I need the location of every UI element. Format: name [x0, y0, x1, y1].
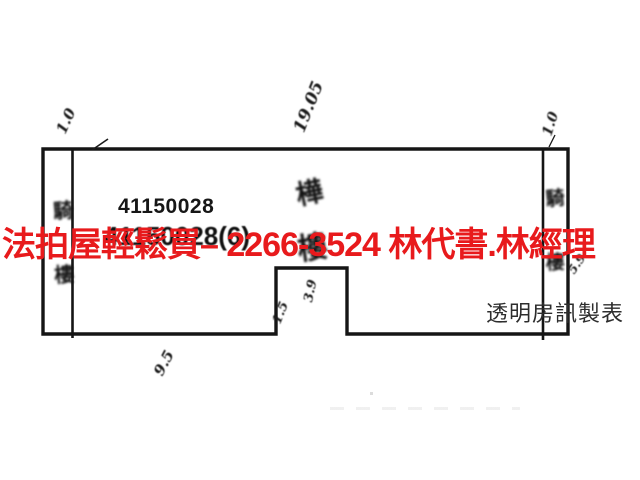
- building-number: 41150028: [118, 195, 214, 219]
- ad-overlay-text: 法拍屋輕鬆買– 2266-3524 林代書.林經理: [2, 217, 595, 266]
- publisher-credit: 透明房訊製表: [486, 296, 624, 328]
- scanned-floor-plan-page: 41150028 41150028(6) 法拍屋輕鬆買– 2266-3524 林…: [0, 0, 640, 480]
- right-strip-char-1: 騎: [544, 183, 566, 212]
